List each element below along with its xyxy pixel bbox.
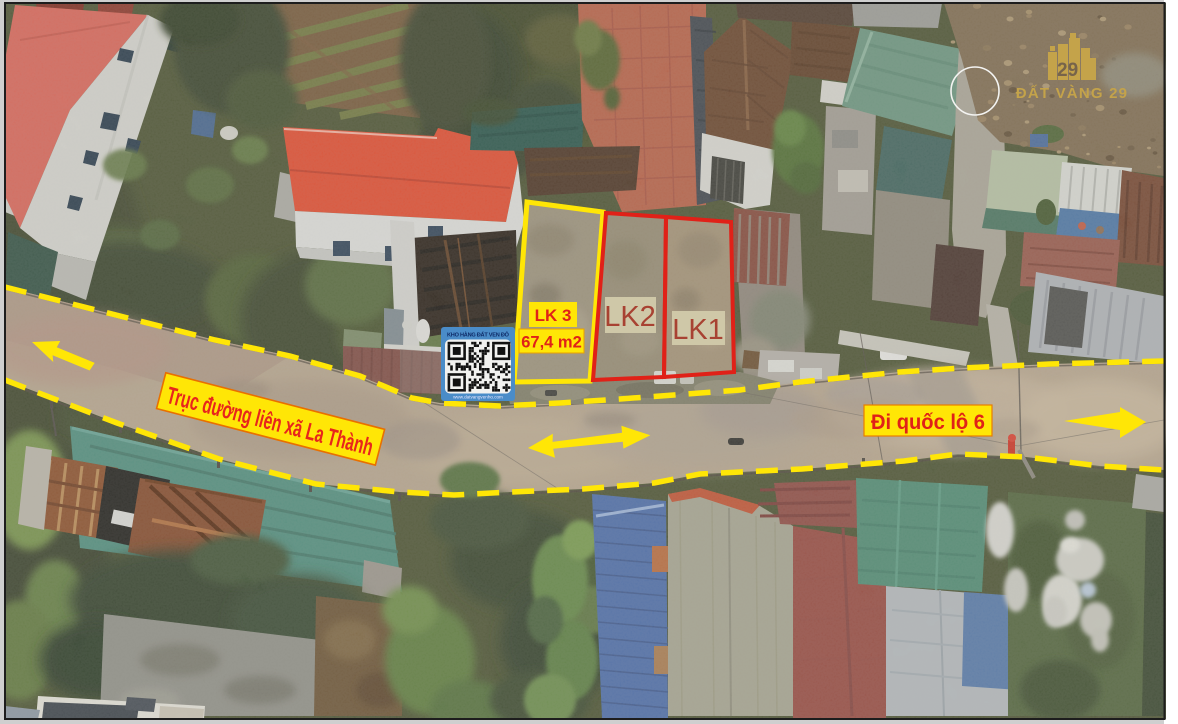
svg-text:LK1: LK1 xyxy=(672,314,724,346)
svg-text:www.datvangvenho.com: www.datvangvenho.com xyxy=(453,395,503,400)
svg-text:LK 3: LK 3 xyxy=(535,306,572,325)
svg-text:KHO HÀNG ĐẤT VEN ĐÔ: KHO HÀNG ĐẤT VEN ĐÔ xyxy=(447,331,510,339)
svg-text:ĐẤT VÀNG 29: ĐẤT VÀNG 29 xyxy=(1016,85,1128,102)
svg-text:Đi quốc lộ 6: Đi quốc lộ 6 xyxy=(871,411,985,434)
svg-text:67,4 m2: 67,4 m2 xyxy=(521,334,582,352)
svg-text:29: 29 xyxy=(1057,60,1078,81)
svg-text:LK2: LK2 xyxy=(604,301,656,333)
